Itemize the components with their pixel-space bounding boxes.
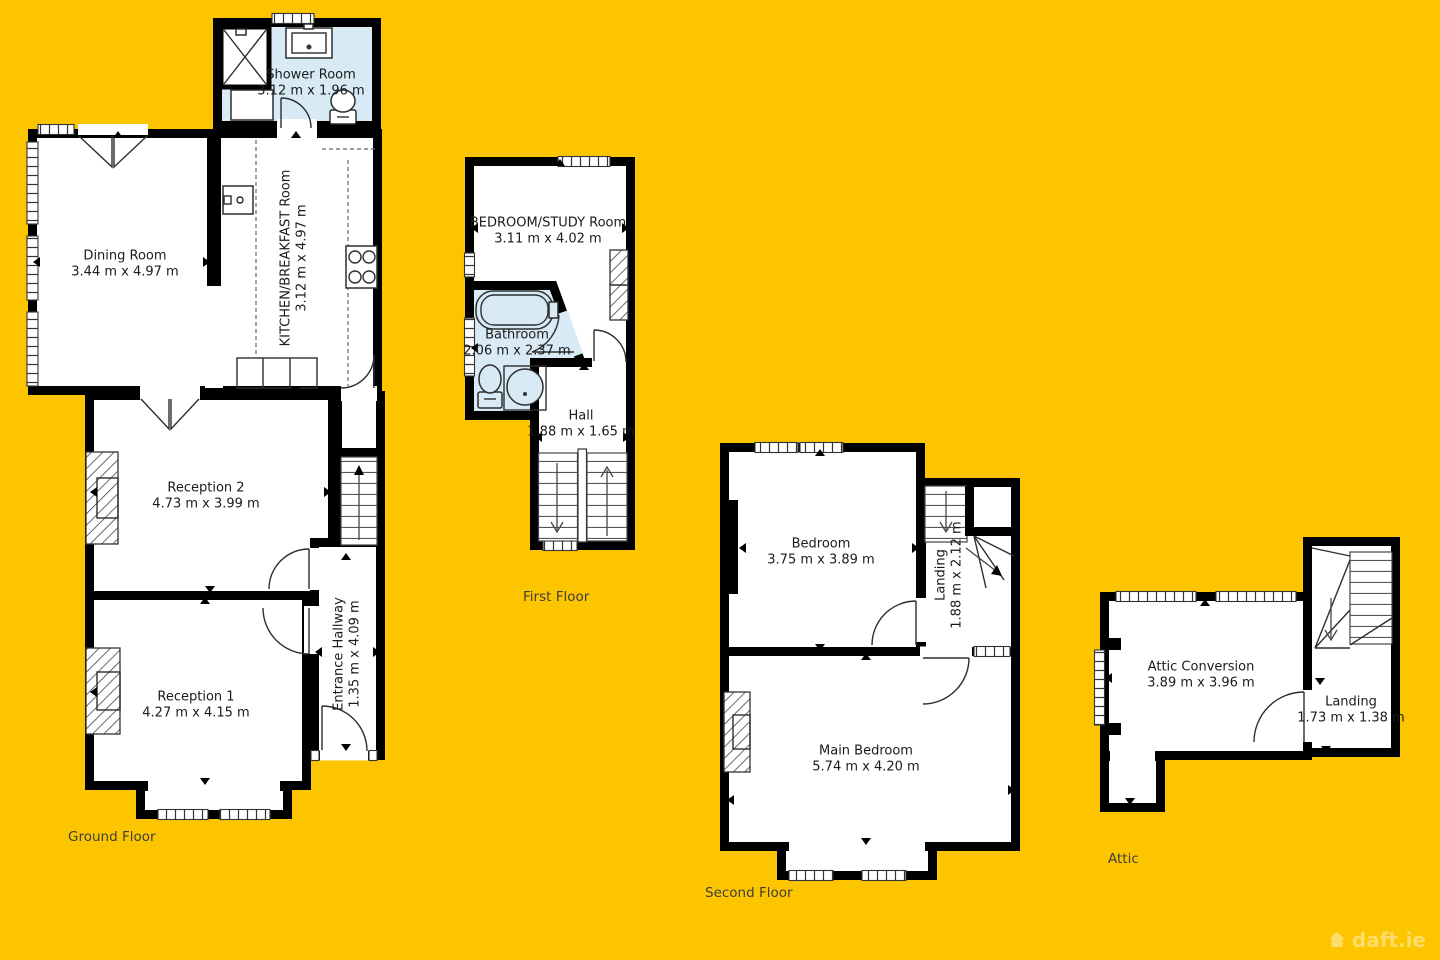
room-label-shower-room: Shower Room 3.12 m x 1.96 m — [257, 68, 364, 99]
room-dims: 1.73 m x 1.38 m — [1297, 710, 1404, 726]
room-dims: 3.44 m x 4.97 m — [71, 264, 178, 280]
room-label-landing-attic: Landing 1.73 m x 1.38 m — [1297, 695, 1404, 726]
second-floor-plan — [720, 443, 1016, 881]
room-dims: 1.88 m x 2.12 m — [949, 521, 965, 628]
room-dims: 3.11 m x 4.02 m — [470, 231, 626, 247]
ground-stairs — [341, 457, 377, 545]
toilet-icon — [478, 392, 502, 408]
reception1-fireplace — [86, 648, 120, 734]
wardrobe — [610, 250, 628, 320]
hall-stairs — [539, 449, 628, 542]
room-name: Main Bedroom — [812, 744, 919, 760]
room-label-entrance-hallway: Entrance Hallway 1.35 m x 4.09 m — [332, 597, 363, 711]
room-dims: 4.27 m x 4.15 m — [142, 705, 249, 721]
reception2-fireplace — [86, 452, 118, 544]
room-name: Hall — [527, 409, 634, 425]
room-label-reception-1: Reception 1 4.27 m x 4.15 m — [142, 690, 249, 721]
room-dims: 5.74 m x 4.20 m — [812, 759, 919, 775]
floorplan-canvas: Shower Room 3.12 m x 1.96 m Dining Room … — [0, 0, 1440, 960]
room-dims: 3.12 m x 4.97 m — [294, 170, 310, 347]
daft-watermark: daft.ie — [1327, 928, 1426, 952]
room-label-reception-2: Reception 2 4.73 m x 3.99 m — [152, 481, 259, 512]
room-label-bathroom: Bathroom 2.06 m x 2.37 m — [463, 328, 570, 359]
room-name: Reception 2 — [152, 481, 259, 497]
room-name: Landing — [1297, 695, 1404, 711]
room-label-landing-second: Landing 1.88 m x 2.12 m — [934, 521, 965, 628]
room-label-bedroom: Bedroom 3.75 m x 3.89 m — [767, 537, 874, 568]
room-dims: 2.06 m x 2.37 m — [463, 343, 570, 359]
sink-icon — [507, 369, 543, 405]
chimney-breast — [720, 500, 738, 594]
room-name: BEDROOM/STUDY Room — [470, 216, 626, 232]
room-name: Dining Room — [71, 249, 178, 265]
main-bedroom-fireplace — [724, 692, 750, 772]
daft-logo-text: daft.ie — [1352, 928, 1426, 952]
room-label-dining-room: Dining Room 3.44 m x 4.97 m — [71, 249, 178, 280]
floor-title-first: First Floor — [523, 589, 589, 605]
room-name: Attic Conversion — [1147, 660, 1254, 676]
room-label-kitchen: KITCHEN/BREAKFAST Room 3.12 m x 4.97 m — [279, 170, 310, 347]
room-name: Landing — [934, 521, 950, 628]
room-label-main-bedroom: Main Bedroom 5.74 m x 4.20 m — [812, 744, 919, 775]
room-dims: 3.75 m x 3.89 m — [767, 552, 874, 568]
floor-title-ground: Ground Floor — [68, 829, 156, 845]
room-label-attic-conversion: Attic Conversion 3.89 m x 3.96 m — [1147, 660, 1254, 691]
room-name: Bathroom — [463, 328, 570, 344]
room-dims: 3.89 m x 3.96 m — [1147, 675, 1254, 691]
room-label-bedroom-study: BEDROOM/STUDY Room 3.11 m x 4.02 m — [470, 216, 626, 247]
floor-title-second: Second Floor — [705, 885, 793, 901]
room-dims: 4.73 m x 3.99 m — [152, 496, 259, 512]
house-icon — [1327, 930, 1347, 950]
room-dims: 3.12 m x 1.96 m — [257, 83, 364, 99]
room-name: Entrance Hallway — [332, 597, 348, 711]
room-name: Reception 1 — [142, 690, 249, 706]
room-dims: 1.35 m x 4.09 m — [347, 597, 363, 711]
room-name: Shower Room — [257, 68, 364, 84]
room-dims: 1.88 m x 1.65 m — [527, 424, 634, 440]
floor-title-attic: Attic — [1108, 851, 1139, 867]
room-name: Bedroom — [767, 537, 874, 553]
room-label-hall: Hall 1.88 m x 1.65 m — [527, 409, 634, 440]
room-name: KITCHEN/BREAKFAST Room — [279, 170, 295, 347]
